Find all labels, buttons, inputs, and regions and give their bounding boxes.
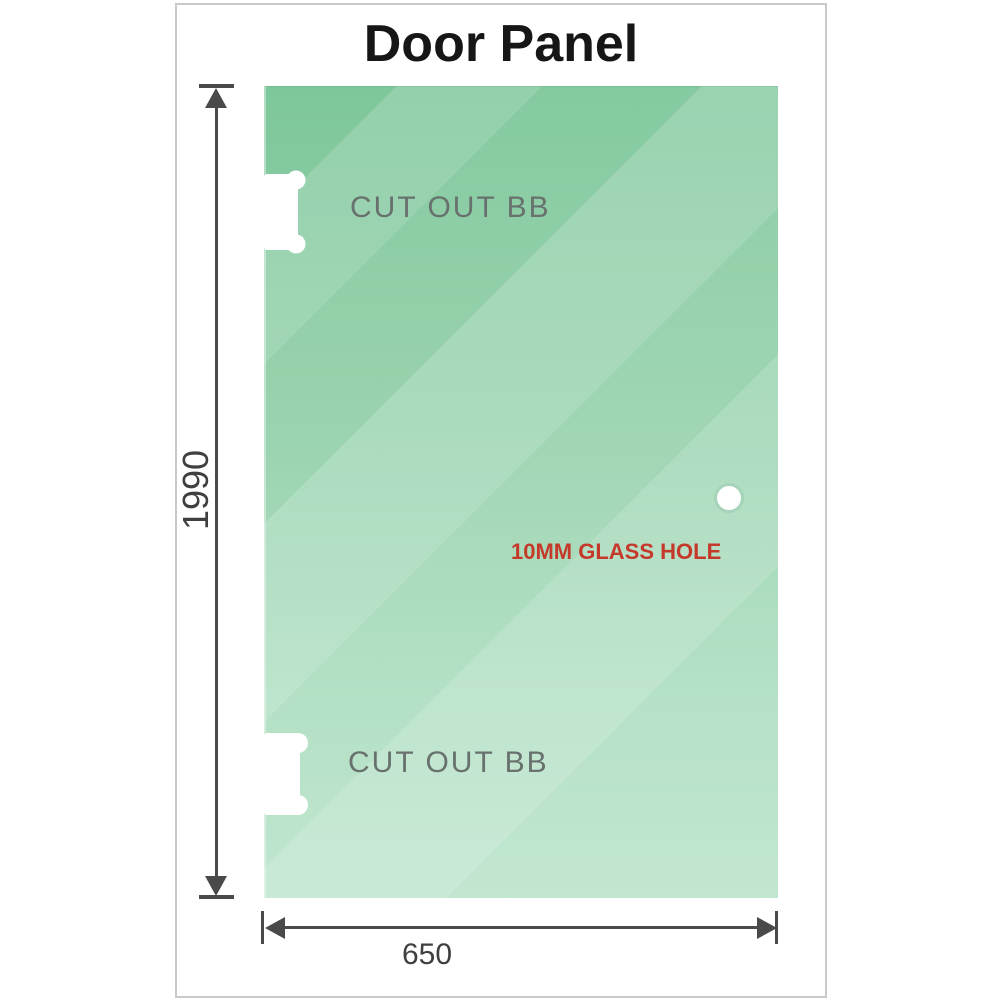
height-dim-label: 1990 — [176, 430, 216, 550]
hinge-cutout-top-shape — [264, 168, 312, 260]
cutout-top-label: CUT OUT BB — [350, 191, 551, 225]
width-dim-arrow-right-icon — [757, 917, 777, 939]
width-dim-arrow-left-icon — [265, 917, 285, 939]
width-dim-label: 650 — [367, 938, 487, 972]
height-dim-arrow-down-icon — [205, 876, 227, 896]
glass-hole-label: 10MM GLASS HOLE — [511, 539, 711, 565]
height-dim-arrow-up-icon — [205, 88, 227, 108]
hinge-cutout-bottom-shape — [264, 726, 314, 824]
cutout-bottom-label: CUT OUT BB — [348, 746, 549, 780]
hinge-cutout-top — [264, 168, 312, 260]
width-dim-left-tick — [261, 911, 264, 944]
page-title: Door Panel — [175, 14, 827, 74]
width-dim-line — [278, 926, 762, 929]
glass-hole — [717, 486, 741, 510]
diagram-canvas: Door Panel CUT OUT BB CUT OUT BB 10MM GL… — [0, 0, 1000, 1000]
hinge-cutout-bottom — [264, 726, 314, 824]
